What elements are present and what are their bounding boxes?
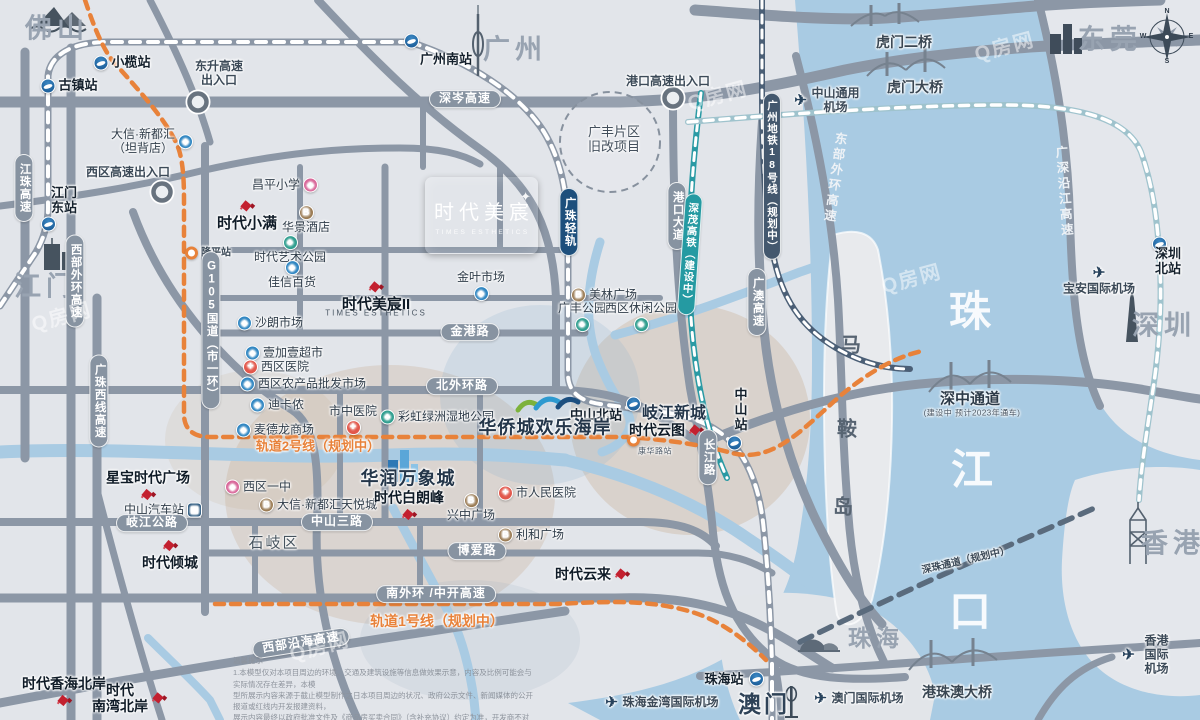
metro-icon [40, 79, 55, 94]
roadlabel-guangshenyanjiang: 广深沿江高速 [1053, 145, 1074, 239]
times-qingcheng-text: 时代倾城 [142, 554, 198, 570]
island-dao-text: 岛 [833, 497, 853, 520]
map-labels-layer: 佛山广州东莞江门深圳香港珠海澳门广州南站小榄站古镇站江门 东站隆平站中山北站中山… [0, 0, 1200, 720]
disclaimer-title: 温馨提示 [233, 655, 533, 666]
brown-icon: B [498, 528, 513, 543]
water-kou-text: 口 [949, 588, 991, 636]
compass-w: W [1140, 33, 1147, 41]
poi-daxin-tanbei: 大信·新都汇 （坦背店）◆ [111, 128, 193, 156]
city-dongguan: 东莞 [1078, 24, 1142, 55]
pill-guangzhuxi-text: 广珠西线高速 [92, 364, 105, 439]
bridge-humen1: 虎门大桥 [887, 79, 943, 95]
times-yuntu: 时代云图 [629, 422, 705, 438]
watermark-5: Q房网 [972, 29, 1037, 67]
station-zhuhai: 珠海站 [704, 673, 743, 688]
times-yunlai: 时代云来 [555, 566, 631, 582]
note-xiqu-exit: 西区高速出入口 [86, 166, 170, 180]
brown-icon: B [463, 493, 478, 508]
brown-icon: B [298, 205, 313, 220]
poi-shizhong-hospital: 市中医院+ [329, 405, 377, 435]
station-zhuhai-text: 珠海站 [704, 673, 743, 688]
plane-icon: ✈ [603, 695, 619, 711]
city-foshan-text: 佛山 [25, 13, 89, 44]
poi-lihe-plaza-text: 利和广场 [516, 528, 564, 542]
poi-jiaxin-store: ◆佳信百货 [268, 260, 316, 290]
poi-hr-mixc: 华润万象城 [361, 469, 456, 490]
poi-shalang-market-text: 沙朗市场 [255, 316, 303, 330]
station-xiaolan-text: 小榄站 [111, 56, 150, 71]
pill-guangao-text: 广澳高速 [750, 277, 763, 327]
channel-shenzhu: 深珠通道（规划中） [921, 545, 1011, 576]
bridge-shenzhong-sub: (建设中 预计2023年通车) [924, 408, 1021, 417]
shop-icon: ◆ [473, 286, 488, 301]
city-macau-text: 澳门 [738, 691, 790, 717]
poi-shiqi-district: 石岐区 [248, 534, 299, 551]
times-yunlai-text: 时代云来 [555, 566, 611, 582]
pill-zhongshan3: 中山三路 [301, 513, 373, 531]
poi-renmin-hospital: +市人民医院 [498, 486, 576, 501]
note-guangfeng-renewal-text: 广丰片区 旧改项目 [588, 125, 640, 155]
shop-icon: ◆ [236, 423, 251, 438]
bridge-humen1-text: 虎门大桥 [887, 79, 943, 95]
pill-nanwaihuan-text: 南外环 /中开高速 [386, 587, 486, 601]
poi-meilin-plaza-text: 美林广场 [589, 288, 637, 302]
poi-lihe-plaza: B利和广场 [498, 528, 564, 543]
rail-guangzhu-qinggui-text: 广珠轻轨 [562, 197, 575, 247]
poi-hongkong-airport-text: 香港国际机场 [1140, 634, 1174, 675]
station-kanghualu: 康华路站 [638, 446, 672, 455]
note-dongsheng-exit-text: 东升高速 出入口 [195, 60, 243, 88]
poi-renmin-hospital-text: 市人民医院 [516, 486, 576, 500]
bridge-shenzhong-text: 深中通道 [940, 390, 1000, 407]
poi-xiqu-wholesale: ◆西区农产品批发市场 [240, 377, 366, 392]
poi-yijiayi-market-text: 壹加壹超市 [263, 346, 323, 360]
pill-g105: G105国道（市一环） [201, 251, 220, 409]
poi-zhongshan-airport-text: 中山通用 机场 [811, 87, 859, 115]
station-zhongshan-icon [724, 436, 742, 451]
park-icon: ♣ [633, 317, 648, 332]
roadlabel-dongbuwaihuan-text: 东部外环高速 [820, 131, 847, 225]
poi-xiqu-yizhong: ◆西区一中 [225, 480, 291, 495]
station-xiaolan: 小榄站 [93, 56, 150, 71]
water-jiang-text: 江 [951, 446, 993, 494]
hosp-icon: + [498, 486, 513, 501]
times-icon [238, 198, 255, 214]
watermark-1: Q房网 [29, 299, 94, 337]
station-shenzhenbei-text: 深圳北站 [1152, 247, 1184, 277]
compass-w-text: W [1140, 33, 1147, 41]
park-icon: ♣ [282, 235, 297, 250]
note-xiqu-exit-text: 西区高速出入口 [86, 166, 170, 180]
times-xiaoman-text: 时代小满 [217, 215, 277, 232]
note-gangkou-exit-text: 港口高速出入口 [626, 75, 710, 89]
pill-changjiang-road-text: 长江路 [701, 438, 714, 476]
island-an-text: 鞍 [837, 419, 857, 442]
city-guangzhou: 广州 [483, 34, 547, 65]
water-kou: 口 [949, 588, 991, 636]
water-zhu: 珠 [949, 288, 991, 336]
pill-jingang-road-text: 金港路 [450, 325, 489, 339]
roadlabel-guangshenyanjiang-text: 广深沿江高速 [1053, 145, 1074, 239]
poi-zhuhai-airport: ✈珠海金湾国际机场 [603, 695, 718, 711]
poi-guangfeng-park-text: 广丰公园 [558, 302, 606, 316]
times-xiaoman: 时代小满 [217, 198, 277, 232]
city-foshan: 佛山 [25, 13, 89, 44]
poi-metro-mall-text: 麦德龙商场 [254, 423, 314, 437]
poi-decathlon: ◆迪卡侬 [250, 398, 304, 413]
city-hongkong: 香港 [1141, 528, 1200, 559]
times-bailangfeng-text: 时代白朗峰 [374, 489, 444, 505]
station-zhuhai-icon [746, 672, 764, 687]
channel-shenzhu-text: 深珠通道（规划中） [921, 545, 1011, 576]
pill-shencen: 深岑高速 [429, 90, 501, 108]
poi-shalang-market: ◆沙朗市场 [237, 316, 303, 331]
pill-zhongshan3-text: 中山三路 [311, 515, 363, 529]
project-name-en: TIMES ESTHETICS [435, 229, 529, 236]
times-icon [140, 487, 157, 503]
island-ma: 马 [841, 335, 861, 358]
watermark-3: Q房网 [879, 261, 944, 299]
shop-icon: ◆ [237, 316, 252, 331]
bridge-shenzhong: 深中通道 [940, 390, 1000, 407]
poi-changping-school-text: 昌平小学 [252, 178, 300, 192]
poi-hongkong-airport: ✈香港国际机场 [1121, 634, 1174, 675]
poi-baoan-airport: ✈宝安国际机场 [1063, 266, 1135, 297]
poi-zhuhai-airport-text: 珠海金湾国际机场 [622, 696, 718, 710]
poi-shizhong-hospital-text: 市中医院 [329, 405, 377, 419]
hosp-icon: + [243, 360, 258, 375]
times-yuntu-text: 时代云图 [629, 422, 685, 438]
park-icon: ♣ [574, 317, 589, 332]
bridge-hzmb-text: 港珠澳大桥 [922, 684, 992, 700]
times-meichen2-en: TIMES ESTHETICS [325, 308, 427, 317]
poi-xiqu-leisure-park-text: 西区休闲公园 [605, 302, 677, 316]
city-macau: 澳门 [738, 691, 790, 717]
plane-icon: ✈ [792, 93, 808, 109]
city-dongguan-text: 东莞 [1078, 24, 1142, 55]
station-guzhen-text: 古镇站 [58, 79, 97, 94]
disclaimer-line: 型所展示内容来源于截止模型制作之日本项目周边的状况、政府公示文件、新闻媒体的公开… [233, 690, 533, 713]
poi-jinye-market-text: 金叶市场 [457, 271, 505, 285]
hosp-icon: + [345, 420, 360, 435]
shop-icon: ◆ [240, 377, 255, 392]
pill-guangzhuxi: 广珠西线高速 [89, 355, 108, 448]
compass-n-text: N [1164, 8, 1169, 16]
compass-n: N [1164, 8, 1169, 16]
times-xingbao-text: 星宝时代广场 [106, 469, 190, 485]
pill-shencen-text: 深岑高速 [439, 92, 491, 106]
poi-jinye-market: 金叶市场◆ [457, 271, 505, 301]
school-icon: ◆ [225, 480, 240, 495]
plane-icon: ✈ [812, 691, 828, 707]
poi-xiqu-hospital-text: 西区医院 [261, 360, 309, 374]
note-guangfeng-renewal: 广丰片区 旧改项目 [588, 125, 640, 155]
shop-icon: ◆ [284, 260, 299, 275]
island-an: 鞍 [837, 419, 857, 442]
times-xingbao: 星宝时代广场 [106, 469, 190, 502]
pill-changjiang-road: 长江路 [698, 429, 717, 485]
watermark-3-text: Q房网 [879, 261, 944, 299]
poi-zhongshan-airport: ✈中山通用 机场 [792, 87, 859, 115]
bridge-humen2-text: 虎门二桥 [876, 34, 932, 50]
poi-huajing-hotel-text: 华景酒店 [282, 221, 330, 235]
station-jiangmendong-text: 江门 东站 [51, 186, 77, 216]
rail-metro-line18-text: 广州地铁18号线（规划中） [766, 100, 778, 253]
pill-jingang-road: 金港路 [440, 323, 499, 341]
bridge-shenzhong-sub-text: (建设中 预计2023年通车) [924, 408, 1021, 417]
shop-icon: ◆ [245, 346, 260, 361]
poi-xiqu-hospital: +西区医院 [243, 360, 309, 375]
watermark-1-text: Q房网 [29, 299, 94, 337]
times-icon [162, 537, 179, 553]
roadlabel-dongbuwaihuan: 东部外环高速 [820, 131, 847, 225]
times-icon [368, 279, 385, 295]
times-icon [56, 693, 73, 709]
pill-beiwaihuan: 北外环路 [426, 377, 498, 395]
compass-s-text: S [1165, 58, 1170, 66]
rail-metro-line18: 广州地铁18号线（规划中） [763, 93, 781, 260]
station-jiangmendong-icon [38, 217, 56, 232]
metro-line2-label: 轨道2号线（规划中） [256, 440, 380, 455]
school-icon: ◆ [303, 178, 318, 193]
city-zhuhai-text: 珠海 [848, 625, 904, 651]
poi-macau-airport: ✈澳门国际机场 [812, 691, 903, 707]
city-guangzhou-text: 广州 [483, 34, 547, 65]
pill-jiangzhu: 江珠高速 [14, 154, 33, 222]
note-gangkou-exit: 港口高速出入口 [626, 75, 710, 89]
water-zhu-text: 珠 [949, 288, 991, 336]
station-guangzhounan-icon [401, 34, 419, 49]
poi-oct-harbour: 华侨城欢乐海岸 [479, 418, 612, 439]
pill-qijiang-road: 岐江公路 [116, 514, 188, 532]
shop-icon: ◆ [178, 135, 193, 150]
station-guangzhounan: 广州南站 [420, 53, 472, 68]
metro-icon [41, 217, 56, 232]
poi-guangfeng-park: 广丰公园♣ [558, 302, 606, 332]
island-dao: 岛 [833, 497, 853, 520]
poi-daxin-tianyue-text: 大信·新都汇天悦城 [277, 498, 377, 512]
station-jiangmendong: 江门 东站 [51, 186, 77, 216]
shop-icon: ◆ [250, 398, 265, 413]
poi-jiaxin-store-text: 佳信百货 [268, 276, 316, 290]
pill-g105-text: G105国道（市一环） [204, 260, 217, 400]
poi-baoan-airport-text: 宝安国际机场 [1063, 283, 1135, 297]
rail-guangzhu-qinggui: 广珠轻轨 [559, 188, 578, 256]
poi-daxin-tianyue: B大信·新都汇天悦城 [259, 498, 377, 513]
note-dongsheng-exit: 东升高速 出入口 [195, 60, 243, 88]
rail-shenmao-text: 深茂高铁（建设中） [680, 202, 699, 306]
metro-line1-label: 轨道1号线（规划中） [370, 613, 504, 629]
watermark-5-text: Q房网 [972, 29, 1037, 67]
compass-e-text: E [1189, 33, 1194, 41]
poi-hr-mixc-text: 华润万象城 [361, 469, 456, 490]
station-zhongshan: 中山站 [732, 388, 747, 433]
poi-xiqu-yizhong-text: 西区一中 [243, 480, 291, 494]
poi-xingzhong-plaza-text: 兴中广场 [447, 509, 495, 523]
station-shenzhenbei: 深圳北站 [1152, 247, 1184, 277]
poi-qijiang-newtown-text: 岐江新城 [642, 405, 706, 423]
bridge-humen2: 虎门二桥 [876, 34, 932, 50]
poi-rainbow-wetland: ♣彩虹绿洲湿地公园 [380, 410, 494, 425]
sparkle-icon: ✦ [520, 189, 531, 205]
poi-oct-harbour-text: 华侨城欢乐海岸 [479, 418, 612, 439]
poi-huajing-hotel: B华景酒店 [282, 205, 330, 235]
plane-icon: ✈ [1091, 266, 1107, 282]
poi-qijiang-newtown: 岐江新城 [642, 405, 706, 423]
times-icon [614, 566, 631, 582]
disclaimer-block: 温馨提示 1.本模型仅对本项目周边的环境、交通及建筑设施等信息做效果示意，内容及… [233, 655, 533, 720]
times-qingcheng: 时代倾城 [142, 537, 198, 570]
times-bailangfeng: 时代白朗峰 [374, 489, 444, 522]
disclaimer-line: 1.本模型仅对本项目周边的环境、交通及建筑设施等信息做效果示意，内容及比例可能会… [233, 667, 533, 690]
metro-line2-label-text: 轨道2号线（规划中） [256, 440, 380, 455]
station-kanghualu-text: 康华路站 [638, 446, 672, 455]
city-shenzhen-text: 深圳 [1132, 310, 1196, 341]
poi-metro-mall: ◆麦德龙商场 [236, 423, 314, 438]
city-hongkong-text: 香港 [1141, 528, 1200, 559]
onode-icon [185, 247, 198, 260]
poi-xiqu-wholesale-text: 西区农产品批发市场 [258, 377, 366, 391]
poi-macau-airport-text: 澳门国际机场 [831, 692, 903, 706]
bus-icon: ▣ [187, 503, 202, 518]
disclaimer-line: 展示内容最终以政府批准文件及《商品房买卖合同》（含补充协议）约定为准，开发商不对… [233, 712, 533, 720]
brown-icon: B [259, 498, 274, 513]
pill-nanwaihuan: 南外环 /中开高速 [376, 585, 496, 603]
station-guzhen: 古镇站 [40, 79, 97, 94]
poi-changping-school: 昌平小学◆ [252, 178, 318, 193]
metro-icon [626, 397, 641, 412]
poi-yijiayi-market: ◆壹加壹超市 [245, 346, 323, 361]
water-jiang: 江 [951, 446, 993, 494]
sparkle-icon: ✦ [517, 205, 523, 213]
park-icon: ♣ [380, 410, 395, 425]
pill-qijiang-road-text: 岐江公路 [126, 516, 178, 530]
project-logo-card: ✦ ✦ 时代美宸 TIMES ESTHETICS [425, 177, 538, 254]
pill-boai-road: 博爱路 [447, 542, 506, 560]
metro-icon [749, 672, 764, 687]
station-zhongshan-text: 中山站 [732, 388, 747, 433]
poi-decathlon-text: 迪卡侬 [268, 398, 304, 412]
times-meichen2-en-text: TIMES ESTHETICS [325, 308, 427, 317]
island-ma-text: 马 [841, 335, 861, 358]
pill-jiangzhu-text: 江珠高速 [17, 163, 30, 213]
poi-daxin-tanbei-text: 大信·新都汇 （坦背店） [111, 128, 175, 156]
metro-icon [404, 34, 419, 49]
poi-xiqu-leisure-park: 西区休闲公园♣ [605, 302, 677, 332]
station-zhongshanbei-icon [623, 397, 641, 412]
times-nanwan: 时代 南湾北岸 [92, 682, 168, 714]
times-nanwan-text: 时代 南湾北岸 [92, 682, 148, 714]
city-shenzhen: 深圳 [1132, 310, 1196, 341]
metro-icon [93, 56, 108, 71]
compass-s: S [1165, 58, 1170, 66]
metro-line1-label-text: 轨道1号线（规划中） [370, 613, 504, 629]
plane-icon: ✈ [1121, 647, 1137, 663]
compass-e: E [1189, 33, 1194, 41]
poi-shiqi-district-text: 石岐区 [248, 534, 299, 551]
city-zhuhai: 珠海 [848, 625, 904, 651]
pill-guangao: 广澳高速 [747, 268, 766, 336]
metro-icon [727, 436, 742, 451]
times-icon [151, 690, 168, 706]
station-guangzhounan-text: 广州南站 [420, 53, 472, 68]
bridge-hzmb: 港珠澳大桥 [922, 684, 992, 700]
poi-xingzhong-plaza: B兴中广场 [447, 493, 495, 523]
times-icon [401, 507, 418, 523]
pill-beiwaihuan-text: 北外环路 [436, 379, 488, 393]
location-map: 佛山广州东莞江门深圳香港珠海澳门广州南站小榄站古镇站江门 东站隆平站中山北站中山… [0, 0, 1200, 720]
pill-boai-road-text: 博爱路 [457, 544, 496, 558]
